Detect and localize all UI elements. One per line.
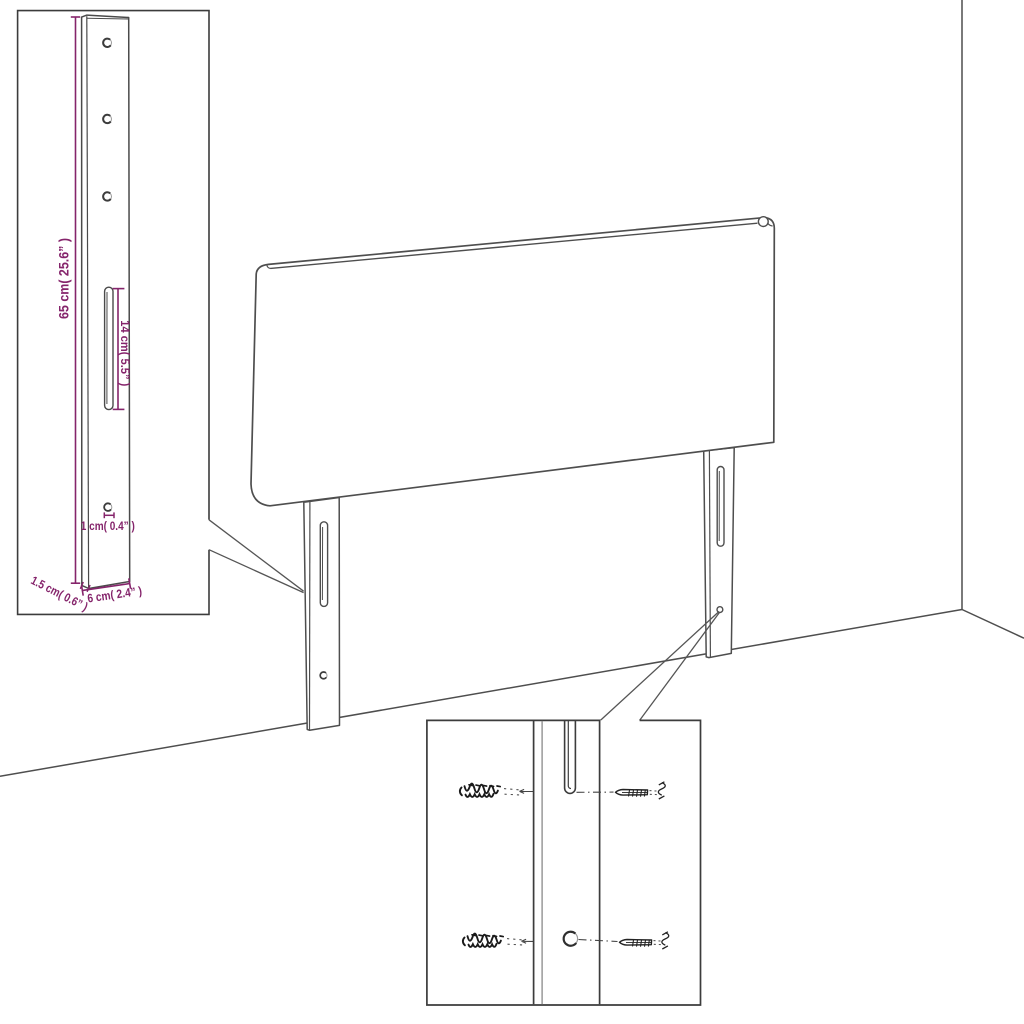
svg-text:65 cm( 25.6” ): 65 cm( 25.6” ) [57, 238, 72, 319]
svg-text:14 cm( 5.5” ): 14 cm( 5.5” ) [118, 320, 130, 386]
svg-text:1 cm( 0.4” ): 1 cm( 0.4” ) [81, 519, 135, 533]
